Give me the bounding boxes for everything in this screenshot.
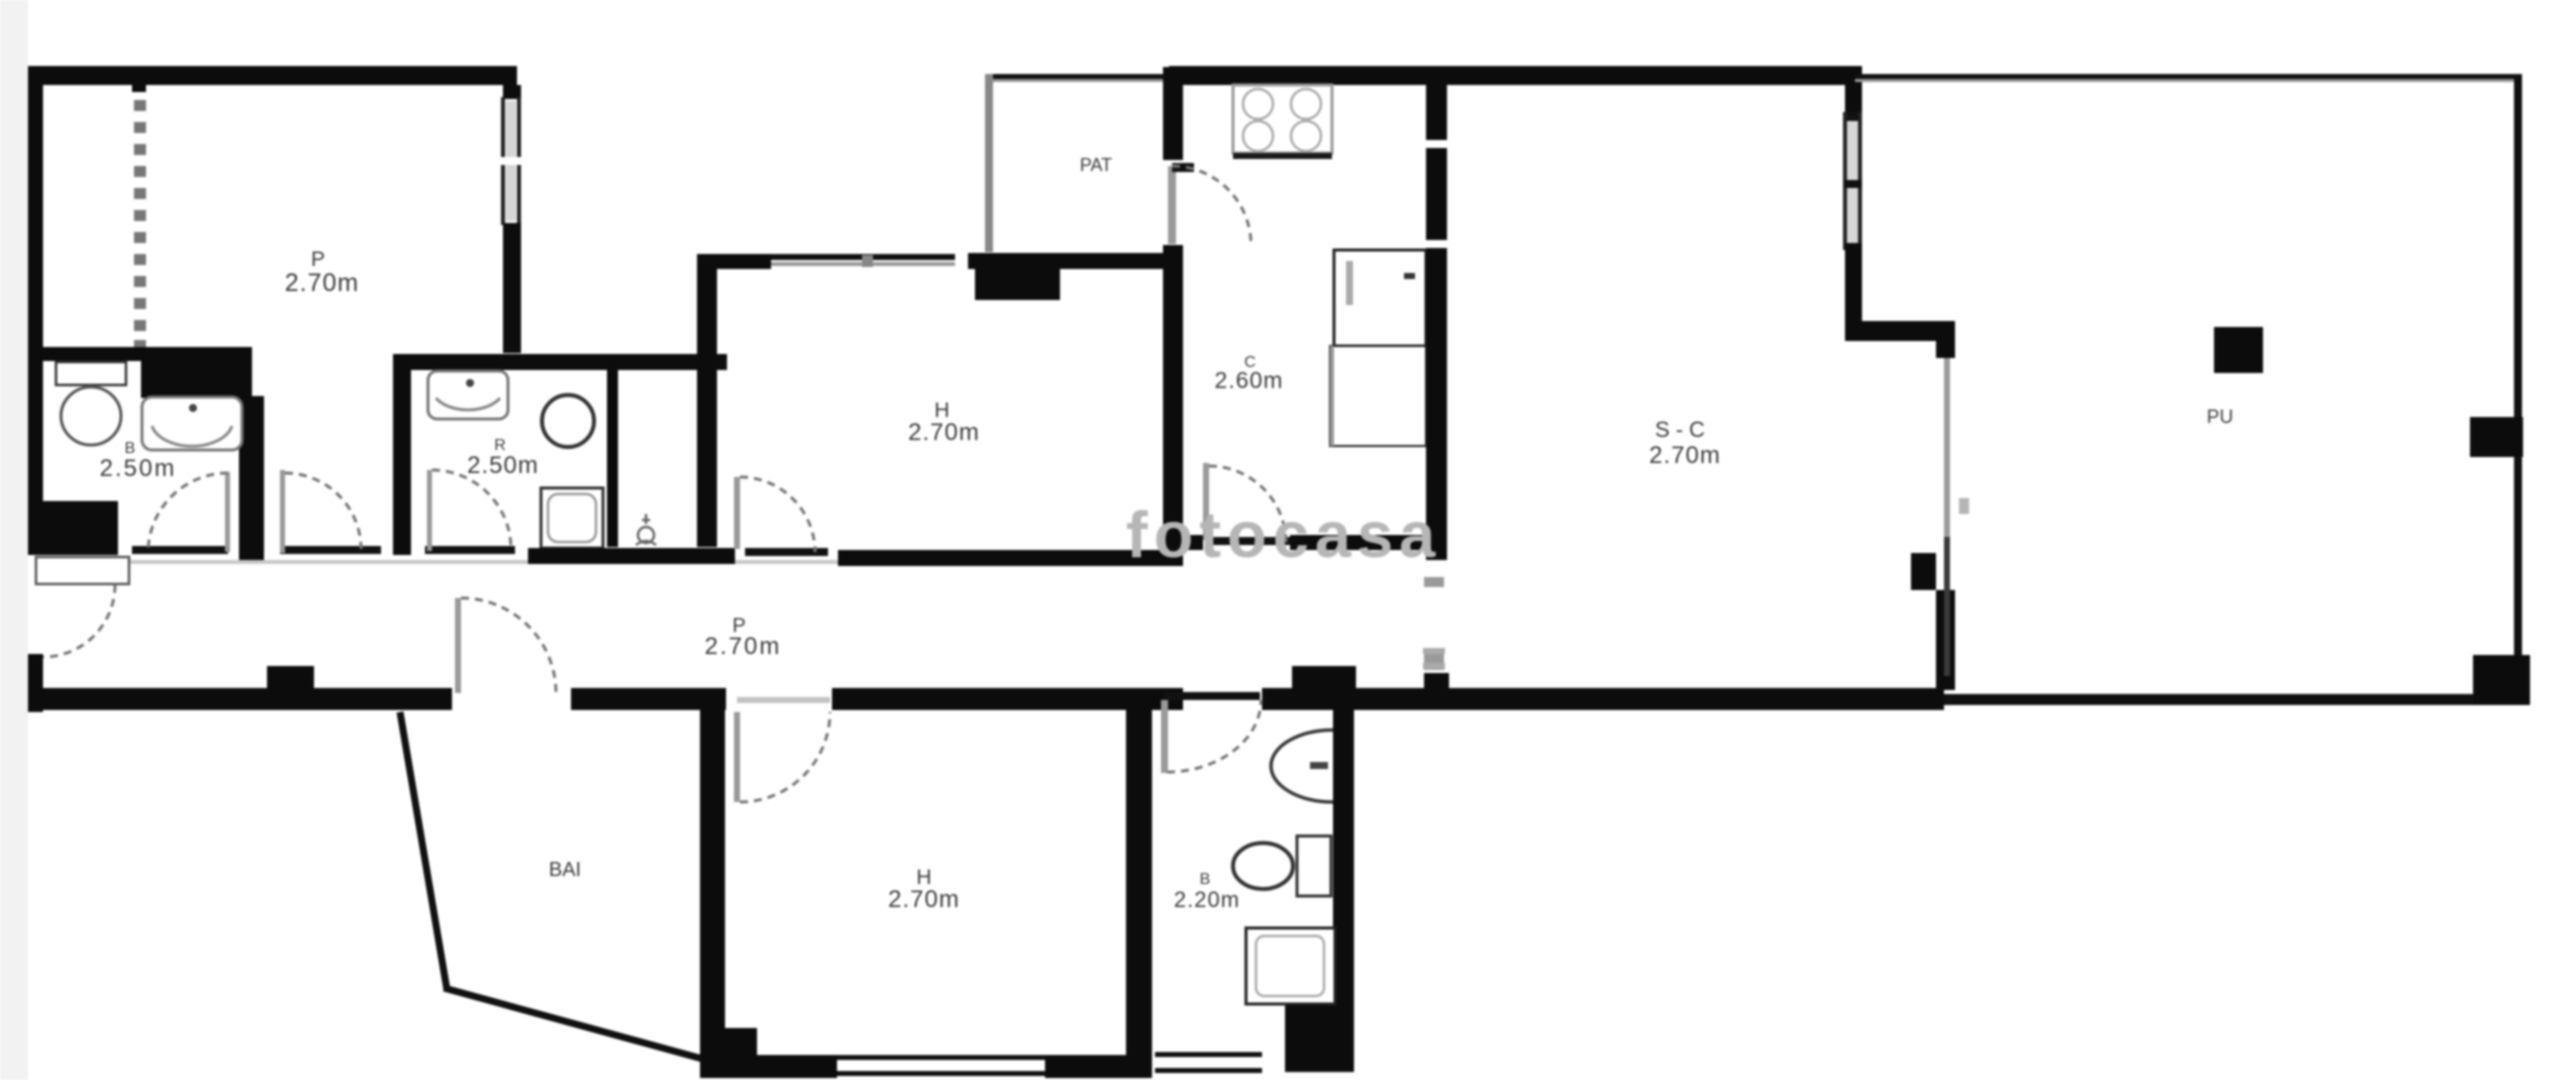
svg-text:fotocasa: fotocasa [1126, 498, 1441, 571]
svg-text:2.70m: 2.70m [908, 419, 980, 446]
svg-text:B: B [1200, 871, 1211, 888]
svg-text:2.60m: 2.60m [1215, 367, 1284, 393]
svg-text:2.50m: 2.50m [100, 455, 177, 482]
svg-text:2.20m: 2.20m [1174, 887, 1240, 912]
svg-text:PU: PU [2207, 407, 2233, 428]
svg-text:2.50m: 2.50m [467, 452, 539, 479]
svg-text:BAI: BAI [549, 859, 581, 881]
svg-text:2.70m: 2.70m [705, 633, 782, 660]
svg-text:2.70m: 2.70m [285, 269, 359, 297]
svg-text:P: P [311, 248, 325, 271]
svg-text:2.70m: 2.70m [1649, 442, 1721, 469]
svg-text:S-C: S-C [1655, 417, 1711, 442]
svg-text:2.70m: 2.70m [888, 886, 960, 913]
svg-text:PAT: PAT [1080, 155, 1112, 175]
